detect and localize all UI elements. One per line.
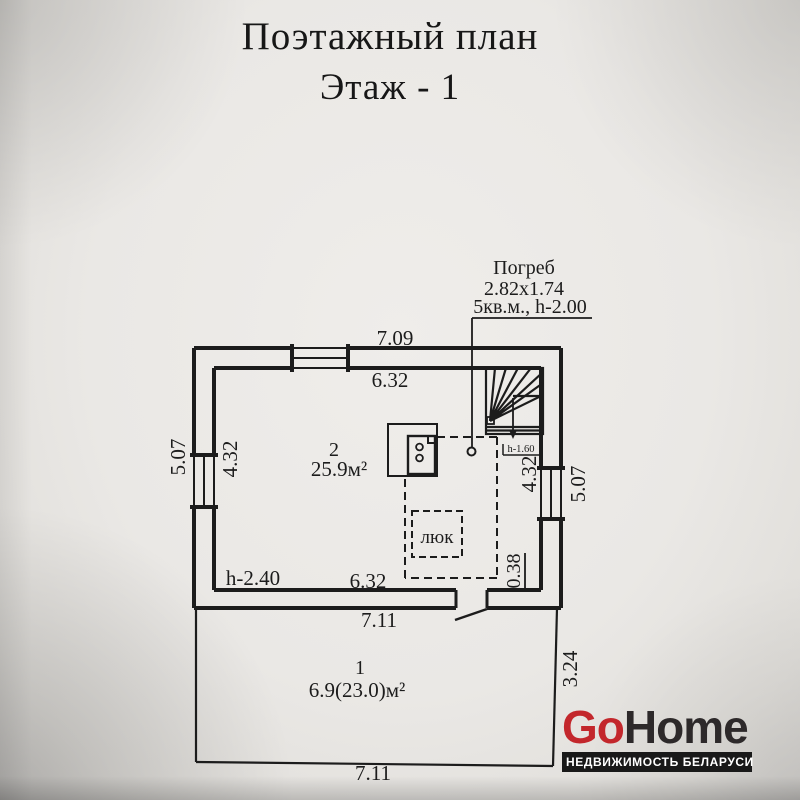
gohome-logo: GoHome НЕДВИЖИМОСТЬ БЕЛАРУСИ: [562, 703, 762, 772]
dim-door-offset: 0.38: [503, 554, 525, 589]
door-swing-line: [455, 609, 487, 620]
logo-go: Go: [562, 701, 624, 753]
dim-bottom-inner: 6.32: [350, 569, 387, 593]
logo-home: Home: [624, 701, 748, 753]
dim-left-inner: 4.32: [218, 441, 242, 478]
dim-top-outer: 7.09: [377, 326, 414, 350]
dim-right-outer: 5.07: [566, 466, 590, 503]
room2-ceiling-height: h-2.40: [226, 566, 280, 590]
stove-icon: [388, 424, 437, 476]
scanned-floor-plan-page: Поэтажный план Этаж - 1: [0, 0, 800, 800]
dim-right-inner: 4.32: [517, 456, 541, 493]
floor-plan-drawing: h-1.60 люк: [0, 0, 800, 800]
room1-number: 1: [355, 657, 365, 679]
stair-height-label: h-1.60: [507, 444, 534, 455]
dim-porch-top: 7.11: [361, 608, 397, 632]
cellar-outline-dashed: [405, 437, 497, 578]
dim-porch-right: 3.24: [558, 650, 582, 687]
door-opening: [455, 590, 487, 620]
hatch-label: люк: [421, 527, 455, 548]
dim-porch-bottom: 7.11: [355, 761, 391, 785]
cellar-note-details: 5кв.м., h-2.00: [473, 296, 586, 318]
window-left: [190, 455, 218, 507]
stair-height-callout: h-1.60: [503, 444, 540, 455]
dim-top-inner: 6.32: [372, 368, 409, 392]
room2-area: 25.9м²: [311, 457, 367, 481]
window-top: [292, 344, 348, 372]
room1-area: 6.9(23.0)м²: [309, 678, 406, 702]
dim-left-outer: 5.07: [166, 439, 190, 476]
dim-door-offset-group: 0.38: [503, 553, 525, 589]
window-right: [537, 468, 565, 519]
stairs: [486, 368, 543, 439]
logo-tagline: НЕДВИЖИМОСТЬ БЕЛАРУСИ: [562, 752, 752, 772]
gohome-logo-text: GoHome: [562, 703, 762, 751]
hatch-square: люк: [412, 511, 462, 557]
cellar-note-name: Погреб: [493, 257, 555, 279]
